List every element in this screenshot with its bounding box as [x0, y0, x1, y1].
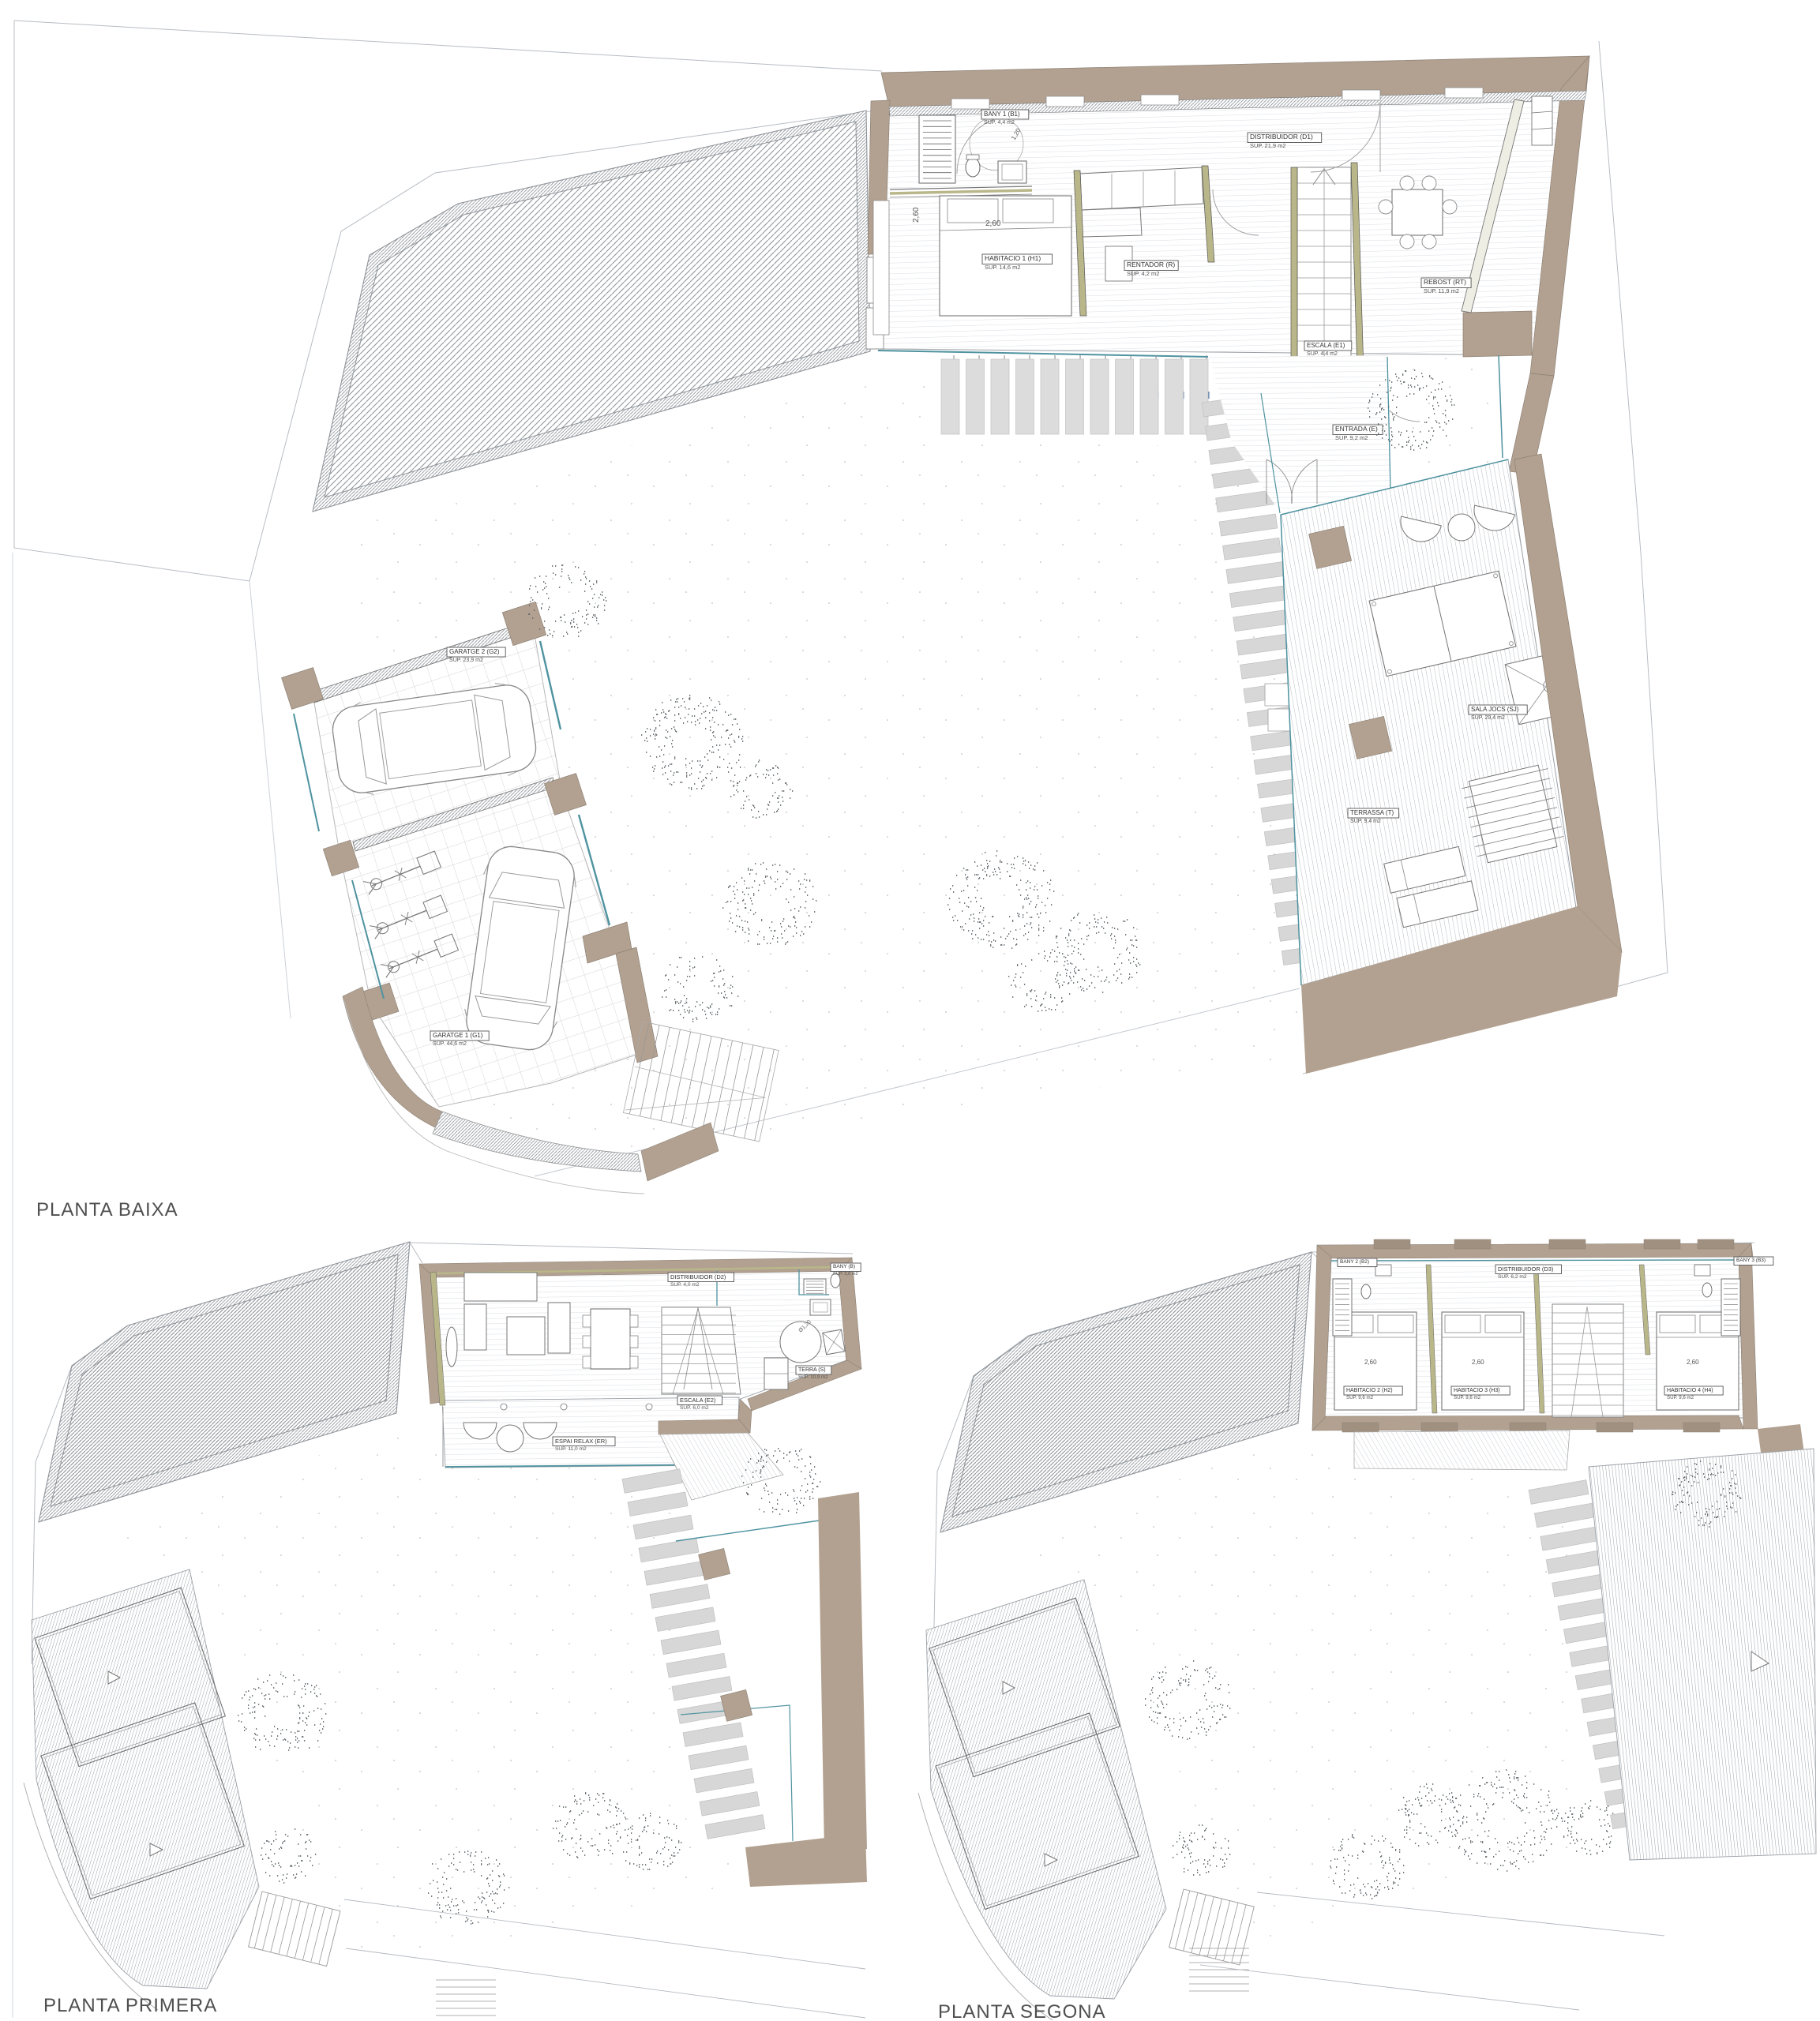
svg-text:2,60: 2,60 — [912, 207, 921, 223]
svg-text:SUP. 44,6 m2: SUP. 44,6 m2 — [433, 1041, 467, 1047]
svg-text:ESCALA (E2): ESCALA (E2) — [680, 1397, 716, 1404]
svg-text:SUP. 9,2 m2: SUP. 9,2 m2 — [1335, 434, 1368, 441]
svg-text:DISTRIBUIDOR (D3): DISTRIBUIDOR (D3) — [1498, 1265, 1554, 1273]
svg-text:SUP. 3,0 m2: SUP. 3,0 m2 — [833, 1272, 858, 1277]
svg-text:SUP. 9,6 m2: SUP. 9,6 m2 — [1454, 1395, 1481, 1400]
svg-text:SUP. 14,6 m2: SUP. 14,6 m2 — [985, 264, 1021, 271]
svg-text:SUP. 23,9 m2: SUP. 23,9 m2 — [449, 658, 483, 663]
svg-text:SUP. 4,4 m2: SUP. 4,4 m2 — [984, 120, 1015, 126]
svg-text:SUP. 11,9 m2: SUP. 11,9 m2 — [1424, 287, 1459, 294]
svg-text:SUP. 21,9 m2: SUP. 21,9 m2 — [1250, 142, 1286, 149]
svg-text:SUP. 11,0 m2: SUP. 11,0 m2 — [555, 1446, 587, 1452]
svg-text:REBOST (RT): REBOST (RT) — [1424, 278, 1466, 286]
svg-text:PLANTA PRIMERA: PLANTA PRIMERA — [43, 1995, 217, 2016]
svg-text:BANY (B): BANY (B) — [833, 1264, 855, 1269]
svg-text:ENTRADA (E): ENTRADA (E) — [1335, 425, 1378, 433]
svg-text:ESCALA (E1): ESCALA (E1) — [1307, 342, 1345, 349]
svg-text:SUP. 9,4 m2: SUP. 9,4 m2 — [1350, 819, 1381, 824]
svg-text:GARATGE 1 (G1): GARATGE 1 (G1) — [433, 1032, 483, 1039]
svg-text:SUP. 29,4 m2: SUP. 29,4 m2 — [1471, 715, 1505, 721]
svg-text:PLANTA BAIXA: PLANTA BAIXA — [36, 1199, 178, 1220]
svg-text:HABITACIO 2 (H2): HABITACIO 2 (H2) — [1346, 1388, 1393, 1393]
svg-text:HABITACIO 1 (H1): HABITACIO 1 (H1) — [985, 254, 1041, 262]
svg-text:SUP. 4,2 m2: SUP. 4,2 m2 — [1127, 270, 1159, 277]
svg-text:SUP. 9,6 m2: SUP. 9,6 m2 — [1346, 1395, 1374, 1400]
svg-text:SUP. 9,6 m2: SUP. 9,6 m2 — [1667, 1395, 1694, 1400]
svg-text:BANY 2 (B2): BANY 2 (B2) — [1340, 1259, 1369, 1265]
svg-text:BANY 3 (B3): BANY 3 (B3) — [1736, 1258, 1766, 1263]
svg-text:DISTRIBUIDOR (D2): DISTRIBUIDOR (D2) — [670, 1273, 726, 1280]
svg-text:HABITACIO 3 (H3): HABITACIO 3 (H3) — [1454, 1388, 1500, 1393]
svg-text:SUP. 6,2 m2: SUP. 6,2 m2 — [1498, 1274, 1527, 1280]
svg-text:BANY 1 (B1): BANY 1 (B1) — [984, 111, 1020, 118]
svg-text:SUP. 4,0 m2: SUP. 4,0 m2 — [670, 1282, 700, 1288]
svg-text:2,60: 2,60 — [1364, 1359, 1377, 1366]
svg-text:2,60: 2,60 — [985, 219, 1001, 228]
svg-text:SUP. 6,0 m2: SUP. 6,0 m2 — [680, 1405, 709, 1411]
svg-text:PLANTA SEGONA: PLANTA SEGONA — [938, 2001, 1106, 2021]
svg-text:TERRA (S): TERRA (S) — [798, 1367, 826, 1373]
svg-text:HABITACIO 4 (H4): HABITACIO 4 (H4) — [1667, 1388, 1713, 1393]
svg-text:ESPAI RELAX (ER): ESPAI RELAX (ER) — [555, 1438, 607, 1445]
svg-text:TERRASSA (T): TERRASSA (T) — [1350, 809, 1394, 816]
svg-text:DISTRIBUIDOR (D1): DISTRIBUIDOR (D1) — [1250, 133, 1313, 141]
svg-text:2,60: 2,60 — [1687, 1359, 1699, 1366]
svg-text:RENTADOR (R): RENTADOR (R) — [1127, 261, 1175, 268]
svg-text:SUP. 10,9 m2: SUP. 10,9 m2 — [798, 1374, 828, 1380]
svg-text:SALA JOCS (SJ): SALA JOCS (SJ) — [1471, 706, 1519, 713]
svg-text:GARATGE 2 (G2): GARATGE 2 (G2) — [449, 648, 500, 655]
svg-text:2,60: 2,60 — [1472, 1359, 1484, 1366]
